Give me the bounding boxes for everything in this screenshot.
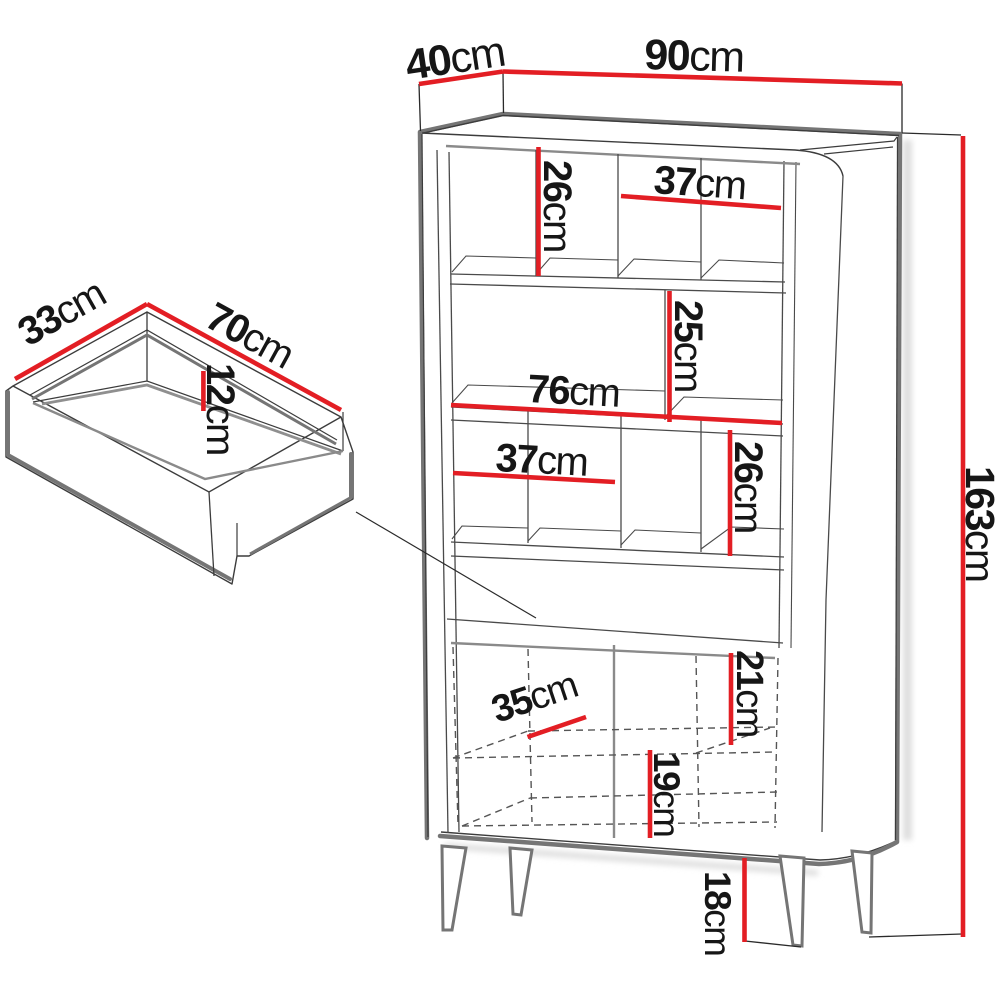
- svg-text:37cm: 37cm: [652, 158, 747, 208]
- svg-text:18cm: 18cm: [697, 871, 738, 955]
- svg-text:25cm: 25cm: [666, 300, 710, 392]
- svg-text:26cm: 26cm: [535, 160, 579, 252]
- svg-text:21cm: 21cm: [728, 650, 770, 737]
- svg-text:76cm: 76cm: [527, 367, 621, 416]
- svg-text:26cm: 26cm: [726, 441, 770, 533]
- svg-text:163cm: 163cm: [957, 466, 1000, 582]
- svg-text:37cm: 37cm: [495, 436, 589, 485]
- svg-text:12cm: 12cm: [198, 363, 242, 455]
- svg-text:19cm: 19cm: [646, 752, 687, 836]
- svg-text:90cm: 90cm: [644, 31, 744, 82]
